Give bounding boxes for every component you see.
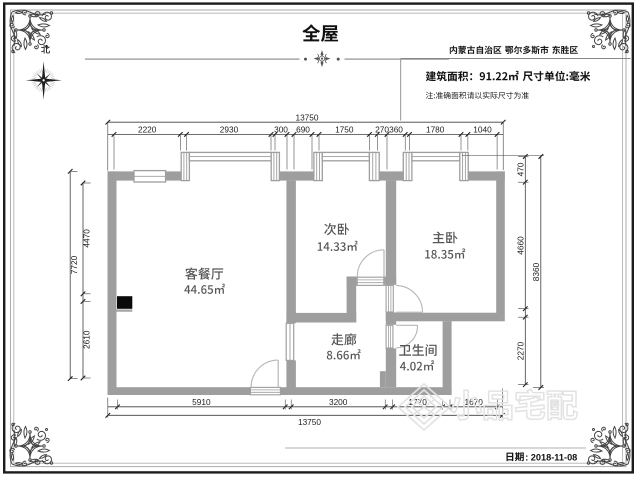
svg-text:13750: 13750 <box>298 417 321 427</box>
svg-text:360: 360 <box>389 125 403 135</box>
svg-text:470: 470 <box>516 162 526 176</box>
svg-text:270: 270 <box>375 125 389 135</box>
svg-text:7720: 7720 <box>69 255 79 274</box>
svg-text:3200: 3200 <box>329 397 348 407</box>
svg-text:4660: 4660 <box>516 236 526 255</box>
svg-text:2220: 2220 <box>138 125 157 135</box>
svg-text:1040: 1040 <box>473 125 492 135</box>
svg-text:: 2018-11-08: : 2018-11-08 <box>525 452 577 462</box>
svg-text:13750: 13750 <box>295 113 318 123</box>
svg-text:1750: 1750 <box>335 125 354 135</box>
svg-text:2610: 2610 <box>82 330 92 349</box>
svg-text:2930: 2930 <box>220 125 239 135</box>
svg-text:4470: 4470 <box>82 229 92 248</box>
svg-text:300: 300 <box>274 125 288 135</box>
svg-text:8360: 8360 <box>531 262 541 281</box>
svg-text:690: 690 <box>296 125 310 135</box>
svg-text:2270: 2270 <box>516 341 526 360</box>
svg-text:5910: 5910 <box>192 397 211 407</box>
svg-text:1780: 1780 <box>426 125 445 135</box>
